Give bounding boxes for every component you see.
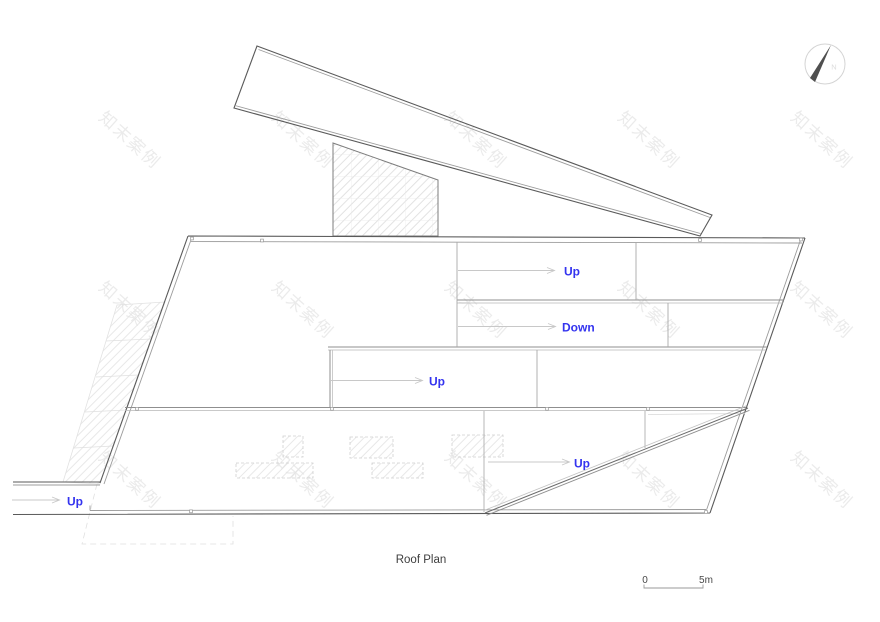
scale-bar: 0 5m (642, 575, 713, 589)
label-lower-up: Up (574, 457, 590, 471)
watermark-text: 知末案例 (614, 108, 683, 173)
scale-five-label: 5m (699, 575, 713, 586)
watermark-text: 知末案例 (268, 448, 337, 513)
skylight-box (372, 463, 423, 478)
roof-drain-marker (800, 238, 803, 241)
label-middle-up: Up (429, 375, 445, 389)
watermark-text: 知末案例 (787, 108, 856, 173)
faint-edge-line (648, 414, 745, 415)
scale-zero-label: 0 (642, 575, 648, 586)
roof-plan-drawing: 知末案例 知末案例 知末案例 知末案例 知末案例 知末案例 知末案例 知末案例 … (0, 0, 880, 622)
north-arrow-icon: N (805, 44, 845, 84)
arrow-entry-up (12, 497, 60, 503)
arrow-upper-up (458, 268, 555, 274)
level-line-dark (125, 300, 784, 408)
watermark-text: 知末案例 (441, 448, 510, 513)
label-entry-up: Up (67, 495, 83, 509)
roof-drain-marker (261, 239, 264, 242)
ramp-edge-light (484, 406, 747, 511)
drawing-title: Roof Plan (396, 554, 447, 566)
watermark-text: 知末案例 (787, 448, 856, 513)
skylight-box (236, 463, 313, 478)
roof-drain-marker (705, 511, 708, 514)
level-line-light (125, 303, 783, 411)
roof-drain-marker (331, 407, 334, 410)
watermark-text: 知末案例 (441, 108, 510, 173)
roof-drain-marker (699, 239, 702, 242)
skylight-box (452, 435, 503, 457)
scale-bar-line (644, 585, 703, 589)
label-upper-up: Up (564, 265, 580, 279)
diagonal-ramp (484, 406, 750, 516)
watermark-text: 知末案例 (268, 278, 337, 343)
skylight-box (283, 436, 303, 457)
roof-drain-marker (546, 407, 549, 410)
arrow-lower-up (488, 459, 570, 465)
roof-plan-canvas: 知末案例 知末案例 知末案例 知末案例 知末案例 知末案例 知末案例 知末案例 … (0, 0, 880, 622)
skylight-box (350, 437, 393, 458)
roof-drain-marker (191, 237, 194, 240)
watermark-text: 知末案例 (441, 278, 510, 343)
roof-drain-marker (136, 407, 139, 410)
roof-drain-marker (190, 510, 193, 513)
arrow-middle-up (331, 378, 423, 384)
roof-drain-marker (647, 407, 650, 410)
watermark-text: 知末案例 (787, 278, 856, 343)
north-letter: N (831, 63, 836, 72)
watermark-text: 知末案例 (95, 108, 164, 173)
direction-labels: Up Down Up Up Up (67, 265, 595, 509)
watermark-text: 知末案例 (614, 278, 683, 343)
ramp-edge-dark (485, 408, 748, 513)
label-down: Down (562, 321, 595, 335)
north-needle (810, 45, 831, 82)
